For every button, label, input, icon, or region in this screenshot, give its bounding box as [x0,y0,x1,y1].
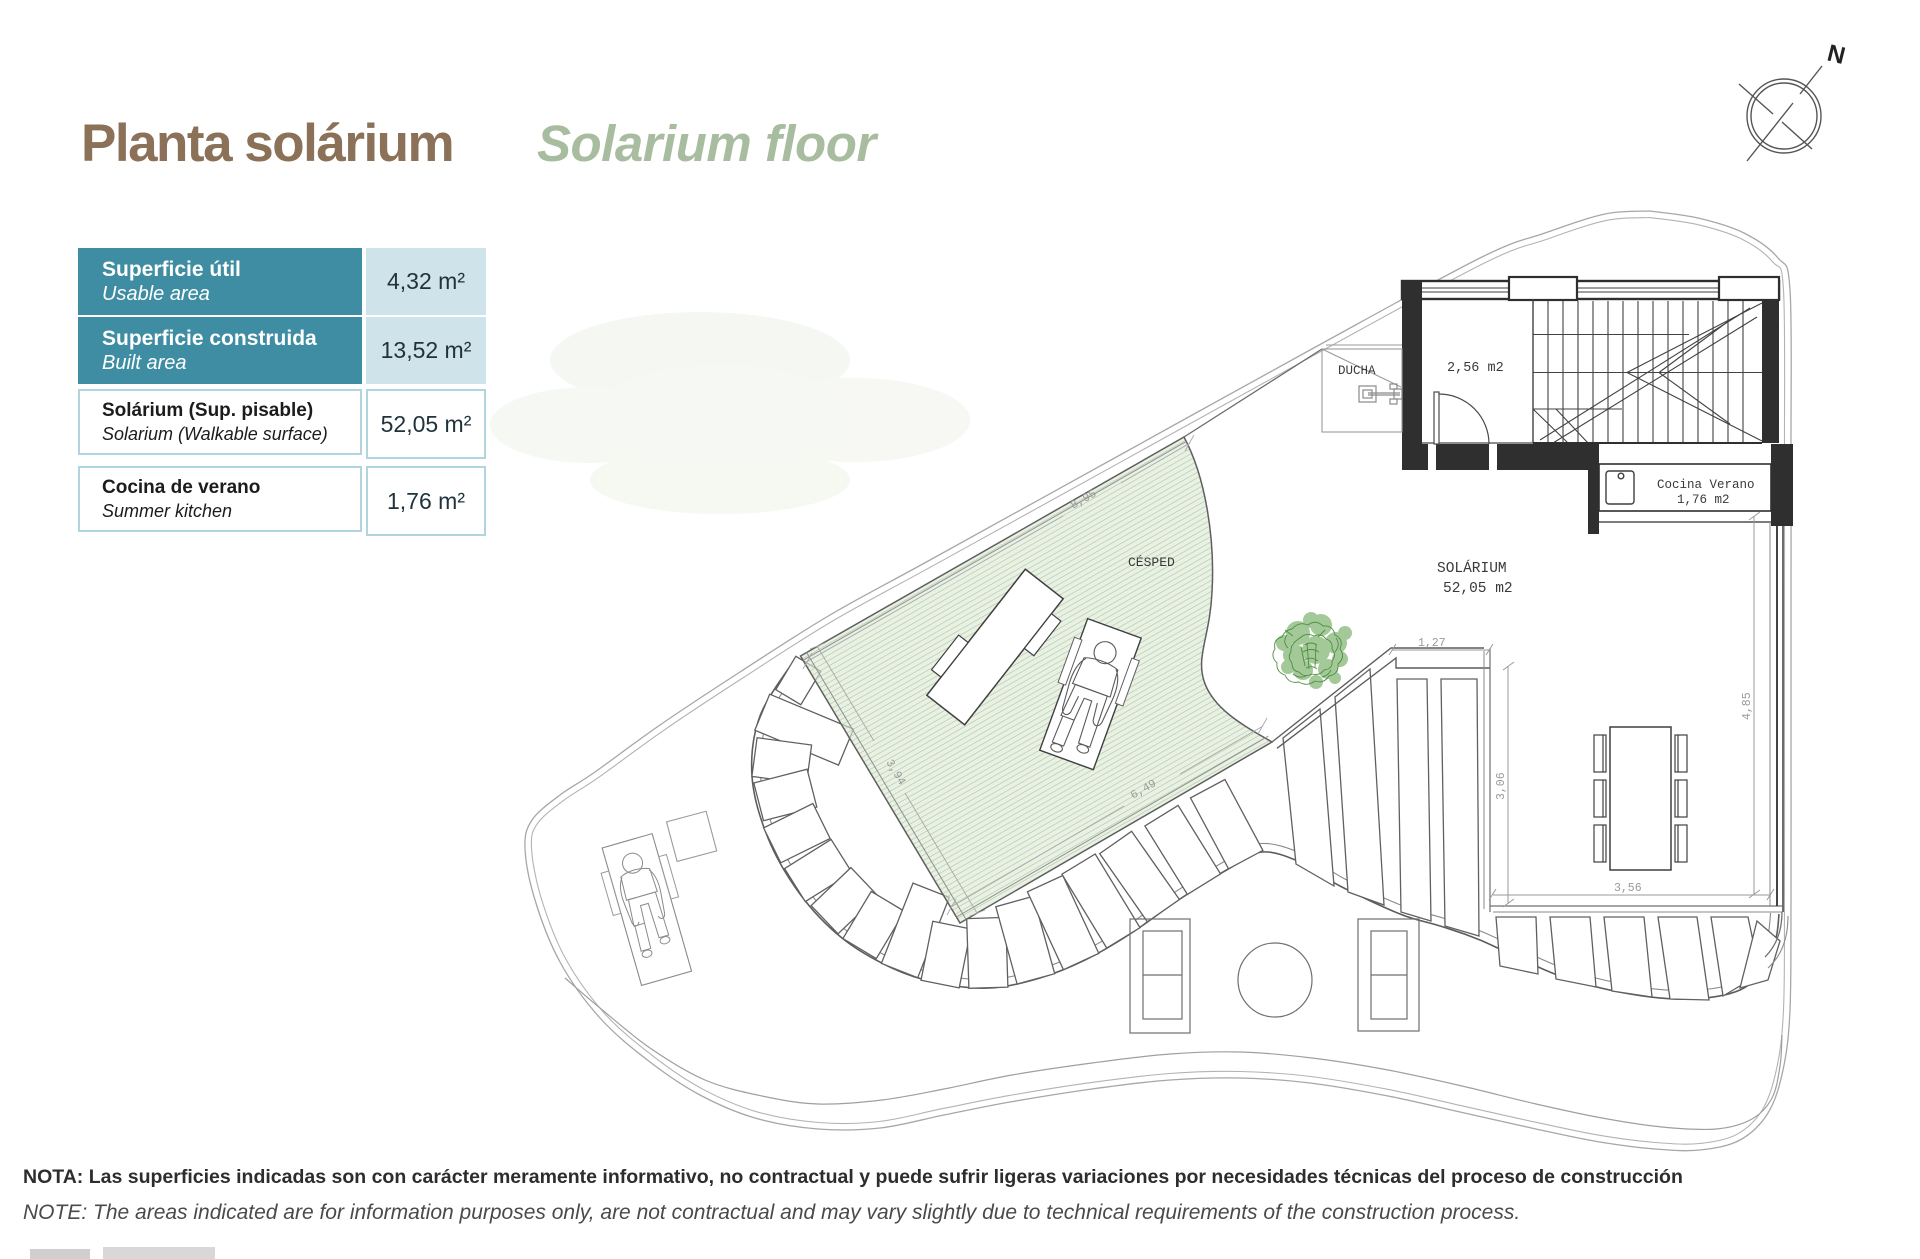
svg-text:3,56: 3,56 [1614,882,1642,895]
svg-text:1,76 m2: 1,76 m2 [1677,493,1730,507]
svg-text:52,05 m2: 52,05 m2 [1443,581,1513,597]
svg-text:3,06: 3,06 [1495,772,1508,800]
svg-text:4,85: 4,85 [1741,692,1754,720]
svg-text:CÉSPED: CÉSPED [1128,555,1175,570]
svg-text:Cocina Verano: Cocina Verano [1657,478,1755,492]
svg-text:2,56 m2: 2,56 m2 [1447,361,1504,376]
svg-text:DUCHA: DUCHA [1338,364,1376,378]
svg-text:1,27: 1,27 [1418,637,1446,650]
svg-text:N: N [1825,40,1848,70]
svg-text:SOLÁRIUM: SOLÁRIUM [1437,559,1507,577]
